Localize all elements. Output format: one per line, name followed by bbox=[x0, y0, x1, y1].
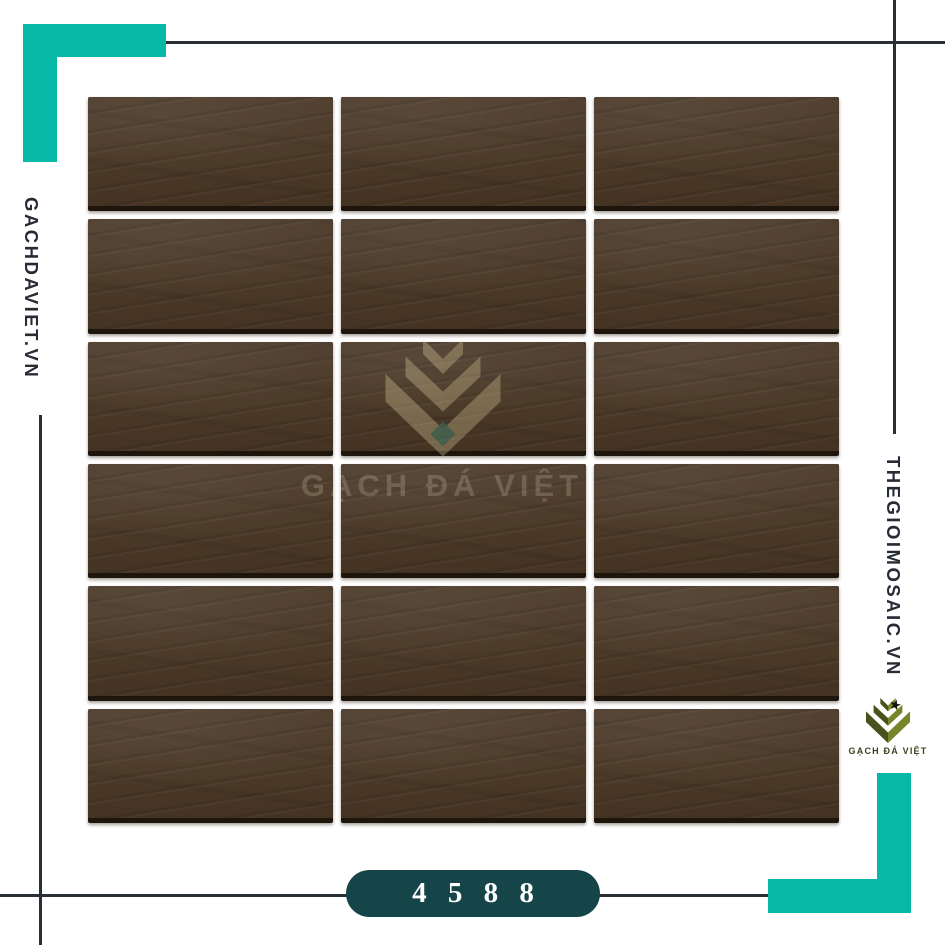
corner-accent-bottom-right-vertical bbox=[877, 773, 911, 913]
tile bbox=[341, 97, 586, 211]
tile bbox=[594, 97, 839, 211]
tile bbox=[341, 219, 586, 333]
tile bbox=[594, 219, 839, 333]
corner-accent-top-left-vertical bbox=[23, 24, 57, 162]
tile bbox=[88, 219, 333, 333]
top-rule-line bbox=[160, 41, 945, 44]
tile-grid bbox=[88, 97, 839, 823]
tile bbox=[88, 97, 333, 211]
tile bbox=[88, 342, 333, 456]
tile bbox=[341, 586, 586, 700]
left-site-label: GACHDAVIET.VN bbox=[20, 197, 42, 379]
tile bbox=[88, 709, 333, 823]
tile bbox=[594, 342, 839, 456]
tile bbox=[594, 586, 839, 700]
logo-text: GẠCH ĐÁ VIỆT bbox=[843, 746, 933, 756]
tile bbox=[341, 709, 586, 823]
tile bbox=[594, 464, 839, 578]
bottom-left-rule-line bbox=[39, 415, 42, 945]
tile bbox=[88, 464, 333, 578]
tile bbox=[594, 709, 839, 823]
product-code: 4 5 8 8 bbox=[405, 877, 541, 910]
product-image: GACHDAVIET.VN THEGIOIMOSAIC.VN GẠCH ĐÁ V… bbox=[0, 0, 945, 945]
gach-da-viet-logo: ★ GẠCH ĐÁ VIỆT bbox=[843, 698, 933, 756]
right-site-label: THEGIOIMOSAIC.VN bbox=[882, 456, 904, 677]
tile bbox=[341, 464, 586, 578]
top-right-rule-line bbox=[893, 0, 896, 434]
tile bbox=[341, 342, 586, 456]
tile bbox=[88, 586, 333, 700]
product-code-badge: 4 5 8 8 bbox=[346, 870, 600, 917]
logo-diamond-icon: ★ bbox=[862, 698, 914, 744]
